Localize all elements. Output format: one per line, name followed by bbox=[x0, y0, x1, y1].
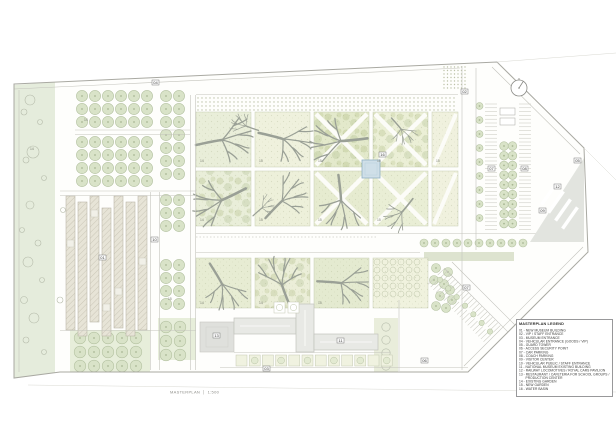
orchard-dot bbox=[241, 97, 242, 98]
orchard-dot bbox=[437, 109, 438, 110]
orchard-dot bbox=[385, 109, 386, 110]
plan-marker: 05 bbox=[574, 158, 581, 163]
legend-title: MASTERPLAN LEGEND bbox=[519, 322, 612, 327]
orchard-dot bbox=[417, 105, 418, 106]
orchard-dot bbox=[309, 109, 310, 110]
orchard-dot bbox=[253, 105, 254, 106]
orchard-dot bbox=[443, 66, 444, 67]
orchard-dot bbox=[249, 105, 250, 106]
tree-center-dot bbox=[121, 351, 123, 353]
orchard-dot bbox=[317, 105, 318, 106]
orchard-dot bbox=[261, 101, 262, 102]
orchard-dot bbox=[405, 97, 406, 98]
orchard-dot bbox=[241, 109, 242, 110]
museum-bar-court bbox=[103, 304, 110, 311]
parcel-number-label: 15 bbox=[377, 218, 381, 222]
orchard-dot bbox=[464, 73, 465, 74]
orchard-dot bbox=[213, 109, 214, 110]
orchard-dot bbox=[397, 101, 398, 102]
tree-center-dot bbox=[81, 108, 83, 110]
orchard-dot bbox=[337, 97, 338, 98]
orchard-dot bbox=[201, 97, 202, 98]
tree-center-dot bbox=[146, 141, 148, 143]
orchard-dot bbox=[417, 97, 418, 98]
orchard-dot bbox=[197, 101, 198, 102]
plan-marker-number: 01 bbox=[100, 255, 105, 260]
caption-title: MASTERPLAN bbox=[170, 390, 200, 395]
orchard-dot bbox=[313, 97, 314, 98]
tree-center-dot bbox=[94, 180, 96, 182]
plan-marker: 07 bbox=[488, 166, 495, 171]
orchard-dot bbox=[373, 109, 374, 110]
orchard-dot bbox=[401, 109, 402, 110]
orchard-dot bbox=[273, 109, 274, 110]
tree-center-dot bbox=[133, 154, 135, 156]
tree-center-dot bbox=[120, 121, 122, 123]
orchard-dot bbox=[201, 105, 202, 106]
orchard-dot bbox=[305, 97, 306, 98]
orchard-dot bbox=[393, 109, 394, 110]
tree-center-dot bbox=[503, 184, 505, 186]
orchard-dot bbox=[325, 105, 326, 106]
orchard-dot bbox=[237, 105, 238, 106]
orchard-dot bbox=[309, 101, 310, 102]
plan-marker-number: 12 bbox=[555, 184, 560, 189]
orchard-dot bbox=[429, 105, 430, 106]
tree-center-dot bbox=[512, 155, 514, 157]
orchard-dot bbox=[261, 97, 262, 98]
orchard-dot bbox=[453, 97, 454, 98]
tree-center-dot bbox=[107, 337, 109, 339]
tree-center-dot bbox=[178, 225, 180, 227]
tree-center-dot bbox=[81, 141, 83, 143]
orchard-dot bbox=[213, 97, 214, 98]
orchard-dot bbox=[305, 101, 306, 102]
legend-item: 16 - WATER BASIN bbox=[519, 387, 612, 391]
orchard-dot bbox=[241, 105, 242, 106]
orchard-dot bbox=[449, 109, 450, 110]
orchard-dot bbox=[437, 97, 438, 98]
tree-center-dot bbox=[107, 365, 109, 367]
orchard-dot bbox=[273, 105, 274, 106]
plan-marker: 09 bbox=[539, 208, 546, 213]
orchard-dot bbox=[409, 101, 410, 102]
museum-bar bbox=[126, 202, 135, 336]
hedge-band bbox=[424, 252, 514, 261]
orchard-dot bbox=[413, 97, 414, 98]
orchard-dot bbox=[281, 105, 282, 106]
orchard-dot bbox=[450, 70, 451, 71]
tree-center-dot bbox=[178, 212, 180, 214]
orchard-dot bbox=[377, 105, 378, 106]
parcel-number-label: 15 bbox=[259, 218, 263, 222]
orchard-dot bbox=[445, 109, 446, 110]
orchard-dot bbox=[333, 97, 334, 98]
orchard-dot bbox=[454, 80, 455, 81]
tree-center-dot bbox=[478, 242, 480, 244]
orchard-dot bbox=[457, 73, 458, 74]
orchard-dot bbox=[443, 77, 444, 78]
bed-tree-circle bbox=[251, 357, 258, 364]
bed-tree-circle bbox=[383, 357, 390, 364]
orchard-dot bbox=[349, 109, 350, 110]
tree-center-dot bbox=[503, 223, 505, 225]
orchard-dot bbox=[349, 101, 350, 102]
orchard-dot bbox=[429, 101, 430, 102]
orchard-dot bbox=[245, 97, 246, 98]
tree-center-dot bbox=[165, 199, 167, 201]
orchard-dot bbox=[233, 105, 234, 106]
orchard-dot bbox=[293, 109, 294, 110]
plan-marker-number: 05 bbox=[575, 158, 580, 163]
tree-center-dot bbox=[503, 174, 505, 176]
museum-bar bbox=[102, 208, 111, 336]
plan-marker: 06 bbox=[421, 358, 428, 363]
orchard-dot bbox=[389, 97, 390, 98]
tree-center-dot bbox=[178, 264, 180, 266]
orchard-dot bbox=[381, 109, 382, 110]
tree-center-dot bbox=[107, 351, 109, 353]
orchard-dot bbox=[389, 109, 390, 110]
orchard-dot bbox=[450, 77, 451, 78]
orchard-dot bbox=[405, 105, 406, 106]
plan-marker: 10 bbox=[151, 237, 158, 242]
tree-center-dot bbox=[512, 213, 514, 215]
orchard-dot bbox=[329, 101, 330, 102]
garden-bed bbox=[236, 355, 247, 366]
tree-center-dot bbox=[165, 264, 167, 266]
orchard-dot bbox=[229, 109, 230, 110]
orchard-dot bbox=[229, 101, 230, 102]
orchard-dot bbox=[245, 105, 246, 106]
orchard-dot bbox=[357, 97, 358, 98]
orchard-dot bbox=[373, 105, 374, 106]
tree-center-dot bbox=[165, 212, 167, 214]
orchard-dot bbox=[397, 105, 398, 106]
tree-center-dot bbox=[107, 141, 109, 143]
orchard-dot bbox=[373, 97, 374, 98]
caption-scale: 1:500 bbox=[208, 390, 220, 395]
orchard-dot bbox=[329, 97, 330, 98]
orchard-dot bbox=[389, 101, 390, 102]
tree-center-dot bbox=[165, 225, 167, 227]
orchard-dot bbox=[265, 109, 266, 110]
tree-center-dot bbox=[479, 161, 481, 163]
orchard-dot bbox=[301, 109, 302, 110]
orchard-dot bbox=[249, 109, 250, 110]
orchard-dot bbox=[369, 105, 370, 106]
orchard-dot bbox=[345, 105, 346, 106]
tree-center-dot bbox=[165, 326, 167, 328]
orchard-dot bbox=[421, 101, 422, 102]
tree-center-dot bbox=[178, 277, 180, 279]
tree-center-dot bbox=[500, 242, 502, 244]
orchard-dot bbox=[365, 105, 366, 106]
orchard-dot bbox=[453, 105, 454, 106]
orchard-dot bbox=[437, 101, 438, 102]
orchard-dot bbox=[321, 109, 322, 110]
plan-marker: 08 bbox=[521, 166, 528, 171]
masterplan-canvas: 040205070812090710011113030616 141515151… bbox=[0, 0, 616, 444]
orchard-dot bbox=[253, 109, 254, 110]
orchard-dot bbox=[401, 97, 402, 98]
orchard-dot bbox=[421, 105, 422, 106]
tree-center-dot bbox=[479, 105, 481, 107]
tree-center-dot bbox=[451, 299, 453, 301]
tree-center-dot bbox=[423, 242, 425, 244]
orchard-dot bbox=[209, 105, 210, 106]
orchard-dot bbox=[337, 109, 338, 110]
orchard-dot bbox=[225, 101, 226, 102]
orchard-dot bbox=[425, 97, 426, 98]
orchard-dot bbox=[257, 97, 258, 98]
orchard-dot bbox=[317, 97, 318, 98]
orchard-dot bbox=[297, 105, 298, 106]
orchard-dot bbox=[289, 105, 290, 106]
tree-center-dot bbox=[121, 365, 123, 367]
tree-center-dot bbox=[479, 147, 481, 149]
tree-center-dot bbox=[165, 303, 167, 305]
orchard-dot bbox=[425, 109, 426, 110]
tree-center-dot bbox=[107, 167, 109, 169]
museum-bar bbox=[78, 202, 87, 336]
tree-center-dot bbox=[512, 174, 514, 176]
tree-center-dot bbox=[479, 203, 481, 205]
tree-center-dot bbox=[456, 242, 458, 244]
orchard-dot bbox=[457, 87, 458, 88]
orchard-dot bbox=[365, 101, 366, 102]
tree-center-dot bbox=[94, 167, 96, 169]
tree-center-dot bbox=[178, 290, 180, 292]
orchard-dot bbox=[265, 101, 266, 102]
legend-box: MASTERPLAN LEGEND 01 - NEW MUSEUM BUILDI… bbox=[516, 319, 613, 397]
tree-center-dot bbox=[445, 242, 447, 244]
plan-marker-number: 06 bbox=[422, 358, 427, 363]
orchard-dot bbox=[377, 97, 378, 98]
orchard-dot bbox=[453, 101, 454, 102]
plan-marker: 16 bbox=[379, 152, 386, 157]
plan-marker: 13 bbox=[213, 333, 220, 338]
tree-center-dot bbox=[434, 242, 436, 244]
tree-center-dot bbox=[503, 145, 505, 147]
plan-marker-number: 03 bbox=[264, 366, 269, 371]
tree-center-dot bbox=[133, 167, 135, 169]
orchard-dot bbox=[289, 97, 290, 98]
tree-center-dot bbox=[512, 184, 514, 186]
orchard-dot bbox=[301, 101, 302, 102]
orchard-dot bbox=[269, 97, 270, 98]
tree-center-dot bbox=[135, 337, 137, 339]
tree-center-dot bbox=[146, 95, 148, 97]
tree-center-dot bbox=[511, 242, 513, 244]
orchard-dot bbox=[421, 109, 422, 110]
orchard-dot bbox=[454, 73, 455, 74]
orchard-dot bbox=[197, 97, 198, 98]
orchard-dot bbox=[417, 101, 418, 102]
orchard-dot bbox=[197, 109, 198, 110]
orchard-dot bbox=[209, 109, 210, 110]
orchard-dot bbox=[443, 80, 444, 81]
orchard-dot bbox=[277, 105, 278, 106]
tree-center-dot bbox=[146, 167, 148, 169]
parcel-number-label: 15 bbox=[318, 301, 322, 305]
tree-center-dot bbox=[479, 133, 481, 135]
orchard-dot bbox=[269, 105, 270, 106]
orchard-dot bbox=[277, 101, 278, 102]
orchard-dot bbox=[341, 109, 342, 110]
tree-center-dot bbox=[146, 108, 148, 110]
orchard-dot bbox=[449, 97, 450, 98]
orchard-dot bbox=[201, 109, 202, 110]
orchard-dot bbox=[345, 101, 346, 102]
orchard-dot bbox=[405, 109, 406, 110]
tree-center-dot bbox=[133, 180, 135, 182]
orchard-dot bbox=[329, 109, 330, 110]
orchard-dot bbox=[429, 97, 430, 98]
plan-marker-number: 16 bbox=[380, 152, 385, 157]
orchard-dot bbox=[443, 87, 444, 88]
orchard-dot bbox=[381, 97, 382, 98]
tree-center-dot bbox=[178, 303, 180, 305]
orchard-dot bbox=[301, 105, 302, 106]
orchard-dot bbox=[337, 105, 338, 106]
orchard-dot bbox=[433, 97, 434, 98]
orchard-dot bbox=[301, 97, 302, 98]
bed-tree-circle bbox=[304, 357, 311, 364]
new-museum-building bbox=[66, 196, 147, 336]
orchard-dot bbox=[273, 101, 274, 102]
orchard-dot bbox=[433, 109, 434, 110]
tree-center-dot bbox=[93, 365, 95, 367]
plan-marker-number: 07 bbox=[464, 285, 469, 290]
orchard-dot bbox=[464, 66, 465, 67]
orchard-dot bbox=[464, 77, 465, 78]
orchard-dot bbox=[413, 109, 414, 110]
orchard-dot bbox=[321, 105, 322, 106]
orchard-dot bbox=[377, 109, 378, 110]
plan-marker: 12 bbox=[554, 184, 561, 189]
orchard-dot bbox=[221, 105, 222, 106]
orchard-dot bbox=[317, 109, 318, 110]
orchard-dot bbox=[325, 101, 326, 102]
tree-center-dot bbox=[135, 365, 137, 367]
tree-center-dot bbox=[107, 154, 109, 156]
orchard-dot bbox=[409, 109, 410, 110]
orchard-dot bbox=[369, 109, 370, 110]
plan-marker: 01 bbox=[99, 255, 106, 260]
orchard-dot bbox=[361, 109, 362, 110]
tree-center-dot bbox=[512, 145, 514, 147]
orchard-dot bbox=[285, 109, 286, 110]
orchard-dot bbox=[245, 101, 246, 102]
orchard-dot bbox=[205, 109, 206, 110]
tree-center-dot bbox=[120, 167, 122, 169]
orchard-dot bbox=[289, 109, 290, 110]
parcel-number-label: 14 bbox=[200, 159, 204, 163]
garden-bed bbox=[274, 302, 285, 313]
plan-marker-number: 09 bbox=[540, 208, 545, 213]
orchard-dot bbox=[217, 109, 218, 110]
tree-center-dot bbox=[165, 173, 167, 175]
tree-center-dot bbox=[479, 217, 481, 219]
orchard-dot bbox=[325, 109, 326, 110]
orchard-dot bbox=[233, 101, 234, 102]
orchard-dot bbox=[425, 105, 426, 106]
orchard-dot bbox=[447, 80, 448, 81]
garden-bed bbox=[342, 355, 353, 366]
orchard-dot bbox=[441, 105, 442, 106]
tree-center-dot bbox=[503, 213, 505, 215]
orchard-dot bbox=[457, 84, 458, 85]
orchard-dot bbox=[333, 101, 334, 102]
tree-center-dot bbox=[133, 108, 135, 110]
plan-marker-number: 07 bbox=[489, 166, 494, 171]
orchard-dot bbox=[257, 109, 258, 110]
orchard-dot bbox=[285, 101, 286, 102]
tree-center-dot bbox=[179, 340, 181, 342]
orchard-dot bbox=[447, 84, 448, 85]
orchard-dot bbox=[443, 70, 444, 71]
parcel-number-label: 14 bbox=[200, 301, 204, 305]
garden-bed bbox=[315, 355, 326, 366]
tree-center-dot bbox=[165, 340, 167, 342]
orchard-dot bbox=[293, 101, 294, 102]
orchard-dot bbox=[441, 97, 442, 98]
tree-center-dot bbox=[445, 307, 447, 309]
orchard-dot bbox=[357, 101, 358, 102]
museum-bar-court bbox=[67, 240, 74, 247]
orchard-dot bbox=[464, 84, 465, 85]
orchard-dot bbox=[361, 101, 362, 102]
tree-center-dot bbox=[133, 141, 135, 143]
orchard-dot bbox=[445, 101, 446, 102]
tree-center-dot bbox=[178, 121, 180, 123]
tree-center-dot bbox=[512, 203, 514, 205]
orchard-dot bbox=[393, 97, 394, 98]
orchard-dot bbox=[409, 105, 410, 106]
orchard-dot bbox=[445, 105, 446, 106]
orchard-dot bbox=[253, 97, 254, 98]
orchard-dot bbox=[281, 101, 282, 102]
orchard-dot bbox=[433, 101, 434, 102]
tree-center-dot bbox=[94, 95, 96, 97]
orchard-dot bbox=[221, 97, 222, 98]
orchard-dot bbox=[464, 70, 465, 71]
orchard-dot bbox=[285, 97, 286, 98]
parcel-number-label: 14 bbox=[84, 118, 88, 122]
orchard-dot bbox=[385, 105, 386, 106]
parcel-number-label: 15 bbox=[259, 159, 263, 163]
plan-marker-number: 13 bbox=[214, 333, 219, 338]
tree-center-dot bbox=[107, 180, 109, 182]
orchard-dot bbox=[447, 77, 448, 78]
orchard-dot bbox=[441, 101, 442, 102]
orchard-dot bbox=[345, 97, 346, 98]
orchard-dot bbox=[297, 101, 298, 102]
orchard-dot bbox=[457, 77, 458, 78]
bed-tree-circle bbox=[331, 357, 338, 364]
tree-center-dot bbox=[165, 160, 167, 162]
orchard-dot bbox=[361, 105, 362, 106]
tree-center-dot bbox=[81, 154, 83, 156]
orchard-dot bbox=[213, 105, 214, 106]
orchard-dot bbox=[454, 70, 455, 71]
orchard-dot bbox=[421, 97, 422, 98]
orchard-dot bbox=[225, 105, 226, 106]
garden-parcels bbox=[196, 112, 458, 308]
tree-center-dot bbox=[81, 95, 83, 97]
orchard-dot bbox=[429, 109, 430, 110]
